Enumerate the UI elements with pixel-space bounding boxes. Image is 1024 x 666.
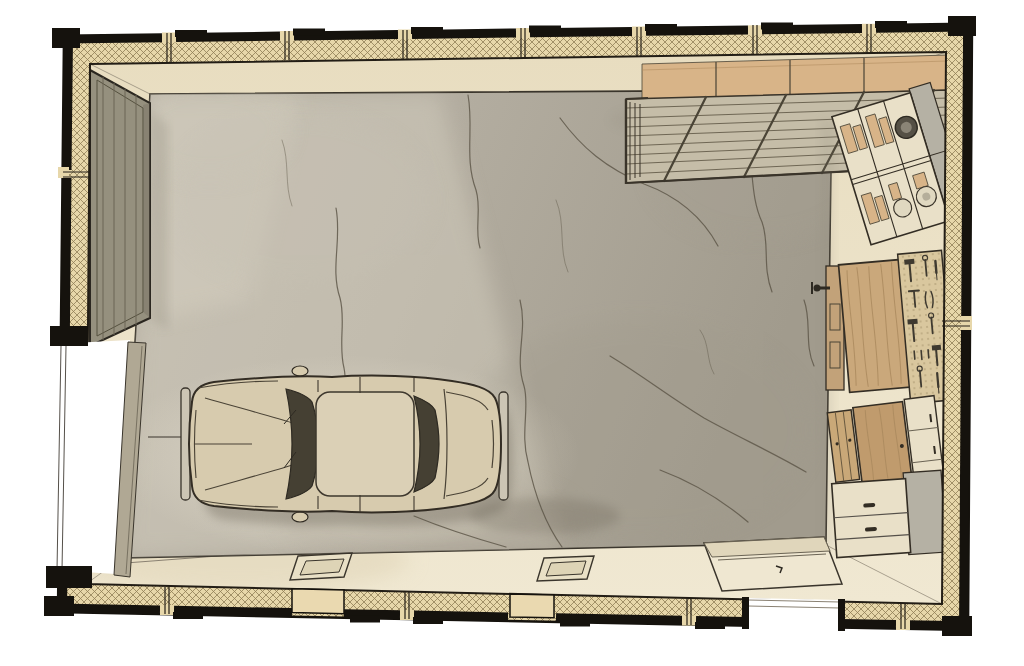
workbench — [812, 259, 911, 392]
side-door-opening — [742, 597, 845, 632]
wall-vent-left — [292, 589, 344, 614]
garage-plan-canvas — [0, 0, 1024, 666]
garage-plan-illustration — [0, 0, 1024, 666]
garage-door-opening — [46, 326, 146, 588]
floor-vent-left — [290, 553, 352, 580]
floor-vent-center — [537, 556, 594, 581]
base-cabinet — [831, 470, 946, 559]
car-roof — [316, 392, 414, 496]
wall-vent-center — [510, 594, 554, 618]
side-mirror — [292, 366, 308, 376]
side-mirror — [292, 512, 308, 522]
cabinet-group — [827, 396, 947, 560]
door-landing — [704, 537, 842, 591]
